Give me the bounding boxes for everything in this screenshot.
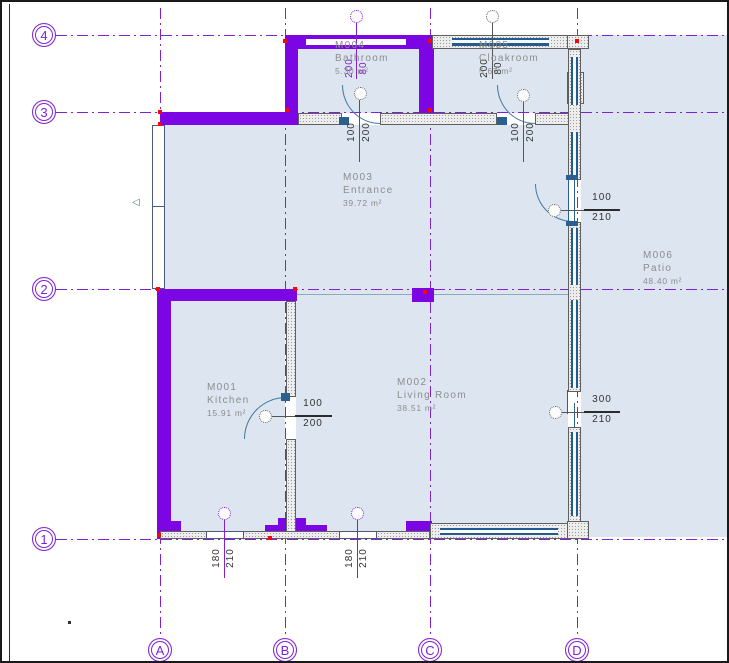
wall-kitchen-living-upper[interactable] [286, 301, 296, 397]
grid-bubble-2[interactable]: 2 [32, 277, 56, 301]
wall-kitchen-living-lower[interactable] [286, 439, 296, 532]
dim-south-window-left-w: 180 [211, 538, 223, 578]
selection-grip[interactable] [283, 39, 287, 43]
wall-south-AC[interactable] [160, 531, 430, 539]
grid-label-B: B [281, 643, 290, 658]
room-area-label-kitchen: 15.91 m² [207, 407, 249, 420]
dim-cloakroom-door-w: 100 [510, 112, 522, 152]
dim-south-window-right-h: 210 [358, 538, 370, 578]
grid-bubble-A[interactable]: A [148, 638, 172, 662]
room-name-patio: Patio [643, 263, 682, 276]
dim-living-east-door-h: 210 [584, 414, 620, 426]
room-area-label-entrance: 39.72 m² [343, 197, 393, 210]
door-tag-kitchen-icon[interactable] [259, 410, 272, 423]
selection-grip[interactable] [428, 39, 432, 43]
selection-grip[interactable] [293, 287, 297, 291]
window-tag-cloakroom-icon[interactable] [486, 10, 499, 23]
room-name-bathroom: Bathroom [335, 53, 389, 66]
dim-entrance-east-door-w: 100 [584, 192, 620, 204]
dim-south-window-left-h: 210 [225, 538, 237, 578]
elevation-marker-icon[interactable]: ◁ [132, 198, 140, 208]
door-tag-bathroom-icon[interactable] [354, 87, 367, 100]
door-leader-bathroom [359, 100, 360, 162]
selection-grip[interactable] [158, 110, 162, 114]
selection-grip[interactable] [423, 290, 427, 294]
window-east-cloakroom[interactable] [571, 57, 578, 105]
grid-bubble-D[interactable]: D [565, 638, 589, 662]
wall-entrance-north-AB[interactable] [160, 112, 298, 125]
room-area-label-cloakroom: 5.67 m² [479, 65, 539, 78]
wall-grid3-seg-c[interactable] [535, 113, 569, 125]
wall-bathroom-west[interactable] [285, 35, 298, 113]
room-id-entrance: M003 [343, 172, 393, 185]
selection-grip[interactable] [158, 122, 162, 126]
window-entrance-west[interactable] [152, 125, 165, 289]
room-area-label-bathroom: 5.30 m² [335, 65, 389, 78]
door-leader-cloakroom [523, 102, 524, 162]
room-id-kitchen: M001 [207, 382, 249, 395]
dim-bathroom-door-h: 200 [361, 112, 373, 152]
wall-grid3-seg-a[interactable] [298, 113, 342, 125]
room-area-label-patio: 48.40 m² [643, 275, 682, 288]
window-entrance-west-mullion [152, 206, 165, 207]
door-tag-living-east-icon[interactable] [549, 406, 562, 419]
grid-label-D: D [572, 643, 581, 658]
dim-entrance-east-door-h: 210 [584, 212, 620, 224]
room-name-living: Living Room [397, 390, 467, 403]
door-leader-entrance-east [561, 210, 585, 211]
selection-grip[interactable] [268, 536, 272, 540]
door-line-entrance-east-a [568, 180, 569, 222]
room-id-bathroom: M004 [335, 40, 389, 53]
selection-grip[interactable] [575, 39, 579, 43]
window-south-CD[interactable] [440, 528, 558, 535]
sheet-inner-border [9, 4, 10, 661]
door-leaf-cloakroom[interactable] [497, 117, 507, 125]
grid-bubble-4[interactable]: 4 [32, 23, 56, 47]
window-east-living-upper[interactable] [571, 300, 578, 388]
room-name-entrance: Entrance [343, 185, 393, 198]
dim-south-window-right-w: 180 [344, 538, 356, 578]
room-id-patio: M006 [643, 250, 682, 263]
dim-living-east-door-w: 300 [584, 394, 620, 406]
grid-line-1[interactable] [56, 539, 724, 540]
grid-label-2: 2 [40, 282, 47, 297]
room-label-kitchen[interactable]: M001 Kitchen 15.91 m² [207, 382, 249, 420]
room-label-living[interactable]: M002 Living Room 38.51 m² [397, 377, 467, 415]
grid-label-4: 4 [40, 28, 47, 43]
room-label-patio[interactable]: M006 Patio 48.40 m² [643, 250, 682, 288]
room-id-cloakroom: M005 [479, 40, 539, 53]
dim-bar-kitchen [295, 415, 332, 417]
selection-grip[interactable] [285, 108, 289, 112]
grid-bubble-1[interactable]: 1 [32, 527, 56, 551]
grid-label-1: 1 [40, 532, 47, 547]
dim-cloakroom-door-h: 200 [525, 112, 537, 152]
wall-kitchen-west[interactable] [157, 289, 171, 536]
sliding-door-living-east-a[interactable] [567, 390, 568, 414]
room-label-bathroom[interactable]: M004 Bathroom 5.30 m² [335, 40, 389, 78]
window-east-living-lower[interactable] [571, 432, 578, 516]
door-line-entrance-east-b [574, 180, 575, 222]
selection-grip[interactable] [428, 108, 432, 112]
selection-grip[interactable] [157, 533, 161, 537]
door-tag-cloakroom-icon[interactable] [517, 89, 530, 102]
dim-bathroom-door-w: 100 [346, 112, 358, 152]
window-east-entrance-upper[interactable] [571, 132, 578, 176]
wall-grid2-AB[interactable] [157, 289, 297, 301]
room-label-cloakroom[interactable]: M005 Cloakroom 5.67 m² [479, 40, 539, 78]
window-tag-south-left-icon[interactable] [218, 507, 231, 520]
floor-plan-canvas: 4 3 2 1 A B C D ◁ [0, 0, 729, 663]
wall-corner-D1[interactable] [567, 521, 589, 539]
sheet-mark-dot [68, 621, 71, 624]
sliding-door-living-east-b[interactable] [574, 403, 575, 428]
grid-bubble-3[interactable]: 3 [32, 100, 56, 124]
grid-label-A: A [156, 643, 165, 658]
door-leaf-kitchen[interactable] [281, 393, 290, 401]
room-id-living: M002 [397, 377, 467, 390]
wall-grid3-seg-b[interactable] [380, 113, 497, 125]
grid-label-3: 3 [40, 105, 47, 120]
dim-bar-entrance-east [584, 209, 620, 211]
room-name-kitchen: Kitchen [207, 395, 249, 408]
dim-kitchen-door-w: 100 [295, 398, 331, 410]
dim-kitchen-door-h: 200 [295, 418, 331, 430]
room-area-label-living: 38.51 m² [397, 402, 467, 415]
door-tag-entrance-east-icon[interactable] [548, 204, 561, 217]
room-name-cloakroom: Cloakroom [479, 53, 539, 66]
window-tag-south-right-icon[interactable] [351, 507, 364, 520]
grid-label-C: C [425, 643, 434, 658]
grid-bubble-C[interactable]: C [418, 638, 442, 662]
door-leader-living-east [562, 412, 584, 413]
selection-grip[interactable] [156, 287, 160, 291]
door-leader-kitchen [272, 416, 296, 417]
room-label-entrance[interactable]: M003 Entrance 39.72 m² [343, 172, 393, 210]
grid-bubble-B[interactable]: B [273, 638, 297, 662]
window-east-entrance-lower[interactable] [571, 228, 578, 285]
dim-bar-living-east [584, 411, 620, 413]
window-tag-bathroom-icon[interactable] [350, 10, 363, 23]
